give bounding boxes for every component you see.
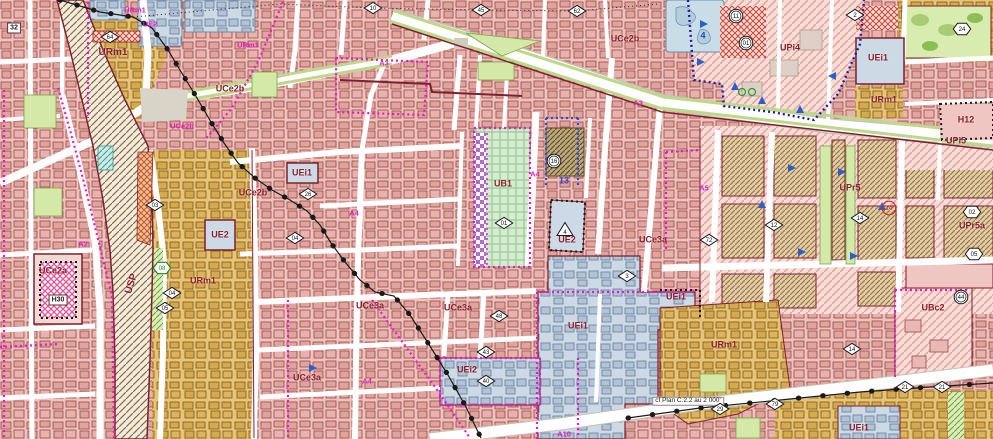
marker-diamond-12: 12 <box>765 219 784 232</box>
svg-text:08: 08 <box>159 266 166 272</box>
svg-text:04: 04 <box>169 291 176 297</box>
marker-diamond-43: 43 <box>477 346 496 359</box>
zone-label-uei1: UEi1 <box>849 424 869 433</box>
zone-label-a3: A3 <box>379 59 389 67</box>
svg-text:26: 26 <box>305 192 312 198</box>
marker-diamond-79: 79 <box>766 398 785 411</box>
marker-diamond-04: 04 <box>163 287 182 300</box>
marker-diamond-62: 62 <box>568 5 587 18</box>
marker-circle-red-14: 14 <box>882 201 897 216</box>
marker-hexagon-02: 02 <box>963 206 982 219</box>
zone-label-uce2a: UCe2a <box>39 267 67 276</box>
zone-label-uei1: UEi1 <box>568 322 588 331</box>
svg-text:24: 24 <box>959 27 966 33</box>
zone-label-uce2b: UCe2b <box>216 85 245 94</box>
svg-text:01: 01 <box>743 41 750 47</box>
marker-circle-01: 01 <box>739 36 754 51</box>
marker-hexagon-green-08: 08 <box>153 262 172 275</box>
marker-diamond-64: 64 <box>101 31 120 44</box>
marker-diamond-14: 14 <box>843 343 862 356</box>
svg-text:11: 11 <box>733 14 740 20</box>
svg-text:48: 48 <box>496 314 503 320</box>
zone-label-ue2: UE2 <box>558 236 576 245</box>
zone-label-13: 13 <box>559 177 569 186</box>
marker-circle-11: 11 <box>729 9 744 24</box>
svg-text:21: 21 <box>902 385 909 391</box>
zone-label-uce2b: UCe2b <box>611 35 640 44</box>
zone-label-urm1: URm1 <box>124 6 146 14</box>
marker-circle-16: 16 <box>547 154 562 169</box>
svg-text:04: 04 <box>292 236 299 242</box>
marker-diamond-10: 10 <box>364 2 383 15</box>
svg-text:44: 44 <box>958 295 965 301</box>
svg-text:14: 14 <box>857 216 864 222</box>
marker-diamond-40: 40 <box>477 375 496 388</box>
zone-label-uei1: UEi1 <box>868 54 888 63</box>
svg-text:29: 29 <box>717 407 724 413</box>
zone-label-urm1: URm1 <box>190 277 216 286</box>
marker-hexagon-24: 24 <box>953 23 972 36</box>
marker-diamond-01: 01 <box>495 217 514 230</box>
zone-label-ue2: UE2 <box>143 20 158 28</box>
marker-diamond-26: 26 <box>299 188 318 201</box>
zone-label-cf-plan-c-2-2-au-2-000-: cf Plan C.2.2 au 2 000' <box>652 397 724 406</box>
zone-label-a4: A4 <box>530 170 540 178</box>
svg-text:21: 21 <box>939 385 946 391</box>
zoning-map[interactable]: URm1UCe2bUCe2bUCe2bUCe2aURm1UEi1UE2UB1UE… <box>0 0 993 439</box>
svg-text:40: 40 <box>483 379 490 385</box>
marker-diamond-21: 21 <box>896 381 915 394</box>
zone-label-upi5: UPi5 <box>946 137 966 146</box>
zone-label-upi4: UPi4 <box>780 44 800 53</box>
svg-text:16: 16 <box>551 159 558 165</box>
marker-diamond-45: 45 <box>472 4 491 17</box>
zone-label-ue2: UE2 <box>211 231 229 240</box>
marker-diamond-05: 05 <box>156 302 175 315</box>
zone-label-a4: A4 <box>349 209 359 217</box>
zone-label-uce2b: UCe2b <box>239 189 268 198</box>
zone-label-upr5: UPr5 <box>839 184 860 193</box>
zone-label-urm1: URm1 <box>237 41 259 49</box>
zone-label-uce3a: UCe3a <box>356 302 384 311</box>
zone-label-usp: USP <box>124 273 140 296</box>
zone-label-a3: A3 <box>633 99 643 107</box>
zone-label-32: 32 <box>7 23 21 34</box>
svg-text:03: 03 <box>152 203 159 209</box>
zone-label-uce3a: UCe3a <box>639 236 667 245</box>
marker-diamond-04: 04 <box>286 232 305 245</box>
zone-label-a4: A4 <box>362 377 372 385</box>
zone-label-ub1: UB1 <box>494 180 512 189</box>
svg-text:45: 45 <box>478 8 485 14</box>
svg-text:43: 43 <box>483 350 490 356</box>
svg-text:79: 79 <box>772 402 779 408</box>
zone-label-uei2: UEi2 <box>457 366 477 375</box>
zone-label-ubc2: UBc2 <box>921 304 944 313</box>
svg-text:72: 72 <box>706 238 713 244</box>
svg-text:4: 4 <box>563 230 567 236</box>
marker-circle-44: 44 <box>954 290 969 305</box>
svg-text:14: 14 <box>849 347 856 353</box>
marker-diamond-29: 29 <box>711 403 730 416</box>
marker-diamond-48: 48 <box>490 310 509 323</box>
svg-text:64: 64 <box>107 35 114 41</box>
svg-text:12: 12 <box>771 223 778 229</box>
zone-label-4: 4 <box>700 32 705 41</box>
marker-triangle-4: 4 <box>556 222 574 237</box>
marker-hexagon-05: 05 <box>965 248 984 261</box>
zone-label-a10: A10 <box>557 430 571 438</box>
svg-text:3: 3 <box>625 274 629 280</box>
zone-label-uei1: UEi1 <box>292 169 312 178</box>
zone-label-urm1: URm1 <box>871 96 897 105</box>
zone-label-urm1: URm1 <box>99 48 128 58</box>
marker-diamond-14: 14 <box>851 212 870 225</box>
map-labels-layer: URm1UCe2bUCe2bUCe2bUCe2aURm1UEi1UE2UB1UE… <box>0 0 993 439</box>
zone-label-uce3a: UCe3a <box>293 374 321 383</box>
svg-text:2: 2 <box>853 13 857 19</box>
svg-text:14: 14 <box>886 206 893 212</box>
svg-text:62: 62 <box>574 9 581 15</box>
svg-text:05: 05 <box>162 306 169 312</box>
svg-text:01: 01 <box>501 221 508 227</box>
svg-text:10: 10 <box>370 6 377 12</box>
zone-label-a2: A2 <box>78 240 88 248</box>
zone-label-h30: H30 <box>49 295 68 306</box>
marker-diamond-21: 21 <box>933 381 952 394</box>
marker-diamond-3: 3 <box>618 270 637 283</box>
zone-label-a5: A5 <box>699 184 709 192</box>
zone-label-uce3a: UCe3a <box>444 304 472 313</box>
svg-text:05: 05 <box>971 252 978 258</box>
svg-text:02: 02 <box>969 210 976 216</box>
marker-diamond-03: 03 <box>146 199 165 212</box>
zone-label-upr5a: UPr5a <box>959 222 985 231</box>
zone-label-urm1: URm1 <box>711 341 737 350</box>
marker-diamond-2: 2 <box>846 9 865 22</box>
zone-label-uei1: UEi1 <box>666 293 686 302</box>
zone-label-uce2b: UCe2b <box>170 122 194 130</box>
marker-diamond-72: 72 <box>700 234 719 247</box>
zone-label-h12: H12 <box>958 116 975 125</box>
